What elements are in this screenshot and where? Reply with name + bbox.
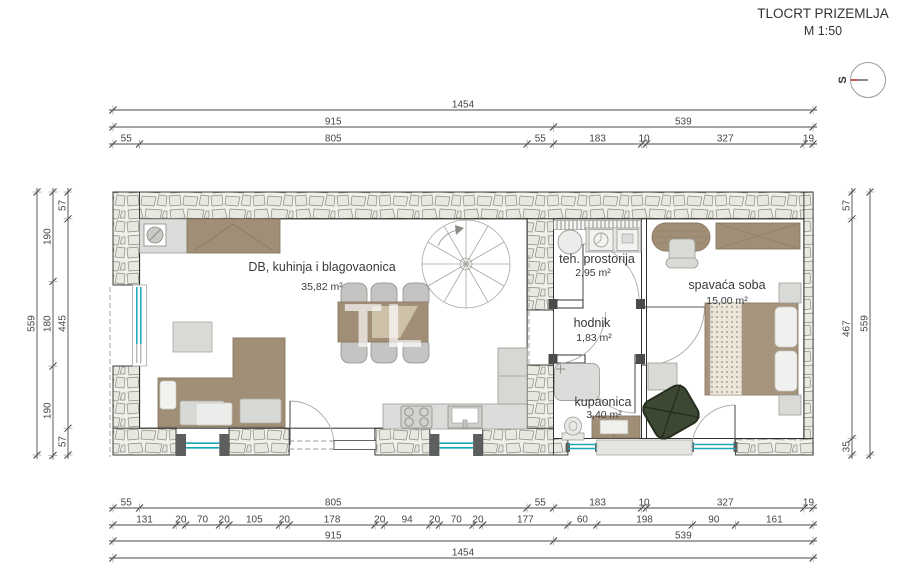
coffee-table bbox=[173, 322, 212, 352]
dim-label: 20 bbox=[374, 515, 386, 526]
wall-bottom-3 bbox=[375, 428, 430, 455]
dim-label: 35 bbox=[842, 441, 853, 453]
wall-bottom-2 bbox=[229, 428, 289, 455]
hall-area: 1,83 m² bbox=[576, 332, 612, 344]
dim-label: 60 bbox=[577, 515, 589, 526]
wall-bedroom-upper bbox=[642, 219, 647, 307]
dim-label: 19 bbox=[803, 134, 815, 145]
dim-label: 55 bbox=[121, 498, 133, 509]
floor-plan-canvas: DB, kuhinja i blagovaonica 35,82 m² teh.… bbox=[0, 0, 905, 586]
dim-label: 70 bbox=[451, 515, 463, 526]
dim-label: 805 bbox=[325, 134, 342, 145]
drawing-scale: M 1:50 bbox=[804, 24, 842, 38]
dim-label: 10 bbox=[638, 134, 650, 145]
bedroom-label: spavaća soba bbox=[688, 278, 765, 292]
wall-bottom-1 bbox=[113, 428, 176, 455]
toilet bbox=[562, 417, 584, 440]
dim-label: 190 bbox=[43, 228, 54, 245]
dim-label: 559 bbox=[860, 315, 871, 332]
dim-label: 20 bbox=[429, 515, 441, 526]
wall-tech-hall bbox=[554, 300, 584, 308]
dim-label: 57 bbox=[842, 199, 853, 211]
sofa-group bbox=[158, 322, 285, 427]
tech-room-area: 2,95 m² bbox=[575, 267, 611, 279]
compass-north-label: S bbox=[837, 76, 849, 83]
spiral-staircase bbox=[422, 220, 510, 308]
dim-label: 94 bbox=[402, 515, 414, 526]
dim-label: 915 bbox=[325, 531, 342, 542]
dim-label: 90 bbox=[708, 515, 720, 526]
wall-interior-stone-upper bbox=[527, 219, 553, 310]
dim-label: 327 bbox=[717, 134, 734, 145]
bed-blanket bbox=[710, 303, 742, 395]
terrace-sill bbox=[597, 440, 692, 455]
dim-label: 10 bbox=[638, 498, 650, 509]
vanity-sink bbox=[600, 420, 628, 434]
tech-room-fixtures bbox=[558, 228, 641, 254]
dim-label: 105 bbox=[246, 515, 263, 526]
kitchen-top bbox=[140, 219, 280, 253]
dim-label: 178 bbox=[324, 515, 341, 526]
wall-bottom-4 bbox=[483, 428, 554, 455]
armchair bbox=[640, 382, 703, 442]
dim-label: 180 bbox=[43, 315, 54, 332]
dim-label: 183 bbox=[589, 134, 606, 145]
wall-interior-stone-lower bbox=[527, 365, 553, 428]
nightstand-2 bbox=[779, 395, 801, 415]
dim-label: 20 bbox=[219, 515, 231, 526]
page-title: TLOCRT PRIZEMLJA bbox=[757, 6, 889, 21]
dim-label: 55 bbox=[535, 134, 547, 145]
dim-label: 20 bbox=[472, 515, 484, 526]
wall-right bbox=[804, 192, 813, 455]
dim-label: 467 bbox=[842, 320, 853, 337]
dim-label: 1454 bbox=[452, 100, 475, 111]
watermark-line1: TL bbox=[344, 292, 426, 361]
north-compass: S bbox=[837, 63, 886, 98]
dim-label: 20 bbox=[175, 515, 187, 526]
sofa-pillow bbox=[160, 381, 176, 409]
dim-label: 1454 bbox=[452, 548, 475, 559]
dim-label: 20 bbox=[279, 515, 291, 526]
dim-label: 539 bbox=[675, 531, 692, 542]
dim-label: 559 bbox=[27, 315, 38, 332]
wall-bottom-5 bbox=[554, 439, 568, 456]
watermark-line2: REA bbox=[343, 357, 467, 413]
door-arc-entry bbox=[290, 401, 334, 445]
dim-label: 183 bbox=[589, 498, 606, 509]
dim-label: 805 bbox=[325, 498, 342, 509]
hall-label: hodnik bbox=[574, 316, 612, 330]
dim-label: 915 bbox=[325, 117, 342, 128]
wall-top bbox=[113, 192, 813, 219]
dim-label: 198 bbox=[636, 515, 653, 526]
dim-label: 327 bbox=[717, 498, 734, 509]
dim-label: 19 bbox=[803, 498, 815, 509]
wall-left-upper bbox=[113, 192, 140, 285]
dim-label: 57 bbox=[58, 199, 69, 211]
dim-label: 70 bbox=[197, 515, 209, 526]
bedroom-area: 15,00 m² bbox=[706, 295, 748, 307]
door-panel-entry bbox=[334, 441, 376, 450]
dim-label: 445 bbox=[58, 315, 69, 332]
dim-label: 55 bbox=[121, 134, 133, 145]
wall-bottom-6 bbox=[735, 439, 813, 456]
boiler bbox=[558, 230, 582, 254]
dim-label: 131 bbox=[136, 515, 153, 526]
bed-pillow-1 bbox=[775, 307, 797, 347]
dim-label: 161 bbox=[766, 515, 783, 526]
door-arc-bedroom bbox=[647, 307, 705, 365]
bathroom-label: kupaonica bbox=[575, 395, 632, 409]
bed-pillow-2 bbox=[775, 351, 797, 391]
living-room-label: DB, kuhinja i blagovaonica bbox=[248, 260, 395, 274]
dim-label: 190 bbox=[43, 402, 54, 419]
dim-label: 177 bbox=[517, 515, 534, 526]
title-block: TLOCRT PRIZEMLJA M 1:50 bbox=[757, 6, 889, 38]
tech-room-label: teh. prostorija bbox=[559, 252, 635, 266]
dim-label: 55 bbox=[535, 498, 547, 509]
living-room-area: 35,82 m² bbox=[301, 281, 343, 293]
bedroom-furniture bbox=[640, 223, 801, 442]
nightstand-1 bbox=[779, 283, 801, 303]
dim-label: 539 bbox=[675, 117, 692, 128]
bathroom-area: 3,40 m² bbox=[586, 409, 622, 421]
dim-label: 57 bbox=[58, 436, 69, 448]
watermark: TL REA bbox=[343, 292, 467, 413]
window-left-wall bbox=[133, 285, 147, 366]
